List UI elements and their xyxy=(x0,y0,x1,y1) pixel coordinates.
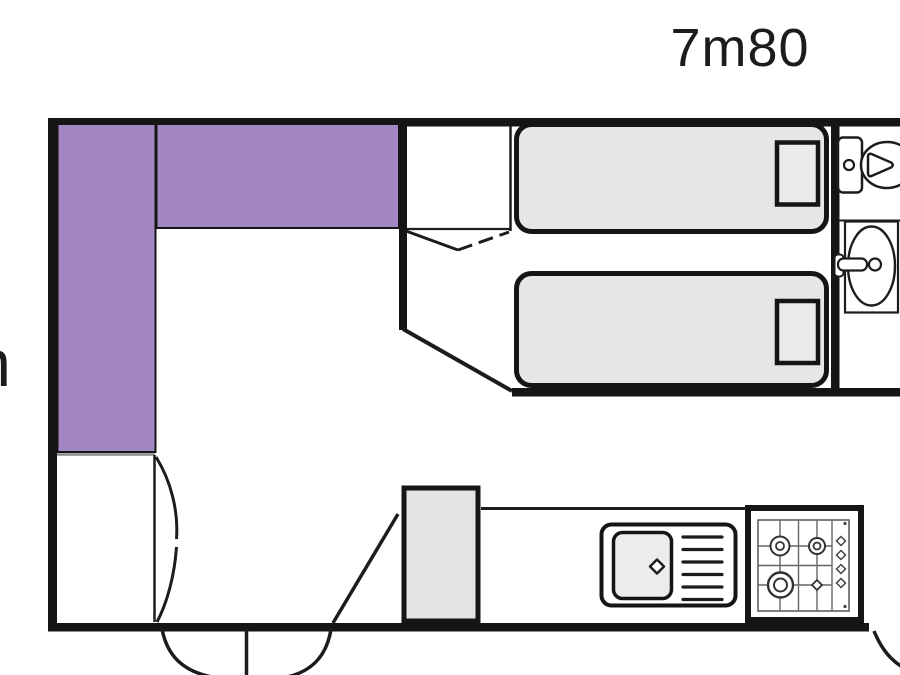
toilet xyxy=(838,138,900,193)
single-bed-2 xyxy=(517,274,827,386)
bed-1-pillow xyxy=(777,143,818,205)
burner-top-left-inner xyxy=(776,542,784,550)
closet-curved-door-lower xyxy=(157,547,177,622)
burner-bottom-left-inner xyxy=(774,579,787,592)
hob-outline xyxy=(748,508,861,620)
floor-plan-drawing xyxy=(0,0,900,675)
closet-curved-door-upper xyxy=(156,457,177,539)
bedroom-door xyxy=(403,329,512,391)
wardrobe xyxy=(406,126,511,250)
single-bed-1 xyxy=(517,125,827,232)
wall-bottom xyxy=(48,623,869,632)
lounge-seat-vertical xyxy=(58,124,156,452)
toilet-flush-button xyxy=(844,160,854,170)
washbasin-faucet xyxy=(838,259,867,271)
gas-hob xyxy=(748,508,861,620)
fridge xyxy=(404,488,478,621)
washbasin-drain xyxy=(869,259,881,271)
bed-2-pillow xyxy=(777,301,818,363)
l-shaped-lounge-seat xyxy=(58,124,400,452)
entrance-door-arc-right xyxy=(287,629,331,675)
wall-bedroom-bottom xyxy=(512,388,900,397)
washbasin xyxy=(835,222,899,313)
burner-top-right-inner xyxy=(814,543,821,550)
entrance-double-door xyxy=(162,628,331,675)
wardrobe-door-fold-left xyxy=(406,231,458,250)
entrance-door-arc-left xyxy=(162,629,212,675)
hob-corner-dot-top xyxy=(843,522,846,525)
wardrobe-door-fold-right xyxy=(458,232,509,250)
kitchen-sink-unit xyxy=(602,525,736,606)
left-closet xyxy=(57,455,177,623)
lounge-seat-horizontal xyxy=(157,124,400,228)
wall-bedroom-divider-left xyxy=(399,122,407,330)
entrance-door-leaf xyxy=(333,514,398,623)
wall-left xyxy=(48,118,57,631)
hob-corner-dot-bottom xyxy=(843,605,846,608)
floor-plan-canvas: 7m80 m xyxy=(0,0,900,675)
bathroom-door-arc xyxy=(874,631,900,668)
